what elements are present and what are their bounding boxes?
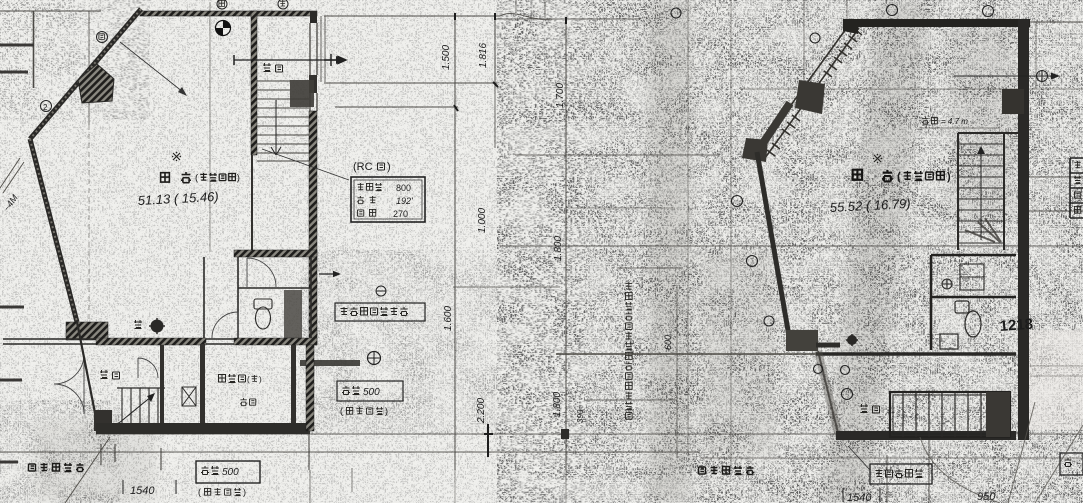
svg-text:270: 270 [393, 209, 408, 219]
svg-text:): ) [243, 487, 246, 497]
svg-text:= 4.7 m: = 4.7 m [941, 117, 968, 126]
svg-text:500: 500 [363, 387, 380, 398]
svg-text:800: 800 [396, 183, 411, 193]
svg-text:1.700: 1.700 [555, 83, 566, 108]
svg-text:1.600: 1.600 [443, 306, 454, 331]
svg-text:1218: 1218 [999, 316, 1033, 335]
svg-text:2: 2 [43, 103, 48, 112]
svg-text:): ) [259, 375, 262, 384]
svg-text:1.000: 1.000 [477, 208, 488, 233]
svg-text:): ) [947, 171, 951, 183]
svg-text:1540: 1540 [130, 485, 155, 497]
svg-text:1.500: 1.500 [441, 45, 452, 70]
svg-text:1.800: 1.800 [553, 236, 564, 261]
svg-text:390: 390 [576, 409, 585, 423]
svg-text:(RC: (RC [353, 161, 373, 173]
svg-text:1540: 1540 [847, 492, 872, 503]
svg-text:1.816: 1.816 [478, 43, 489, 68]
svg-text:500: 500 [222, 467, 239, 478]
svg-text:(: ( [340, 406, 343, 416]
svg-text:): ) [237, 173, 240, 184]
svg-text:600: 600 [663, 335, 673, 350]
svg-text:192': 192' [396, 196, 413, 206]
svg-text:): ) [385, 406, 388, 416]
svg-text:(: ( [198, 487, 201, 497]
svg-text:(: ( [247, 375, 250, 384]
svg-text:2.200: 2.200 [476, 398, 487, 424]
svg-text:(: ( [897, 171, 901, 183]
svg-text:): ) [387, 161, 391, 173]
svg-text:1.800: 1.800 [552, 392, 563, 417]
